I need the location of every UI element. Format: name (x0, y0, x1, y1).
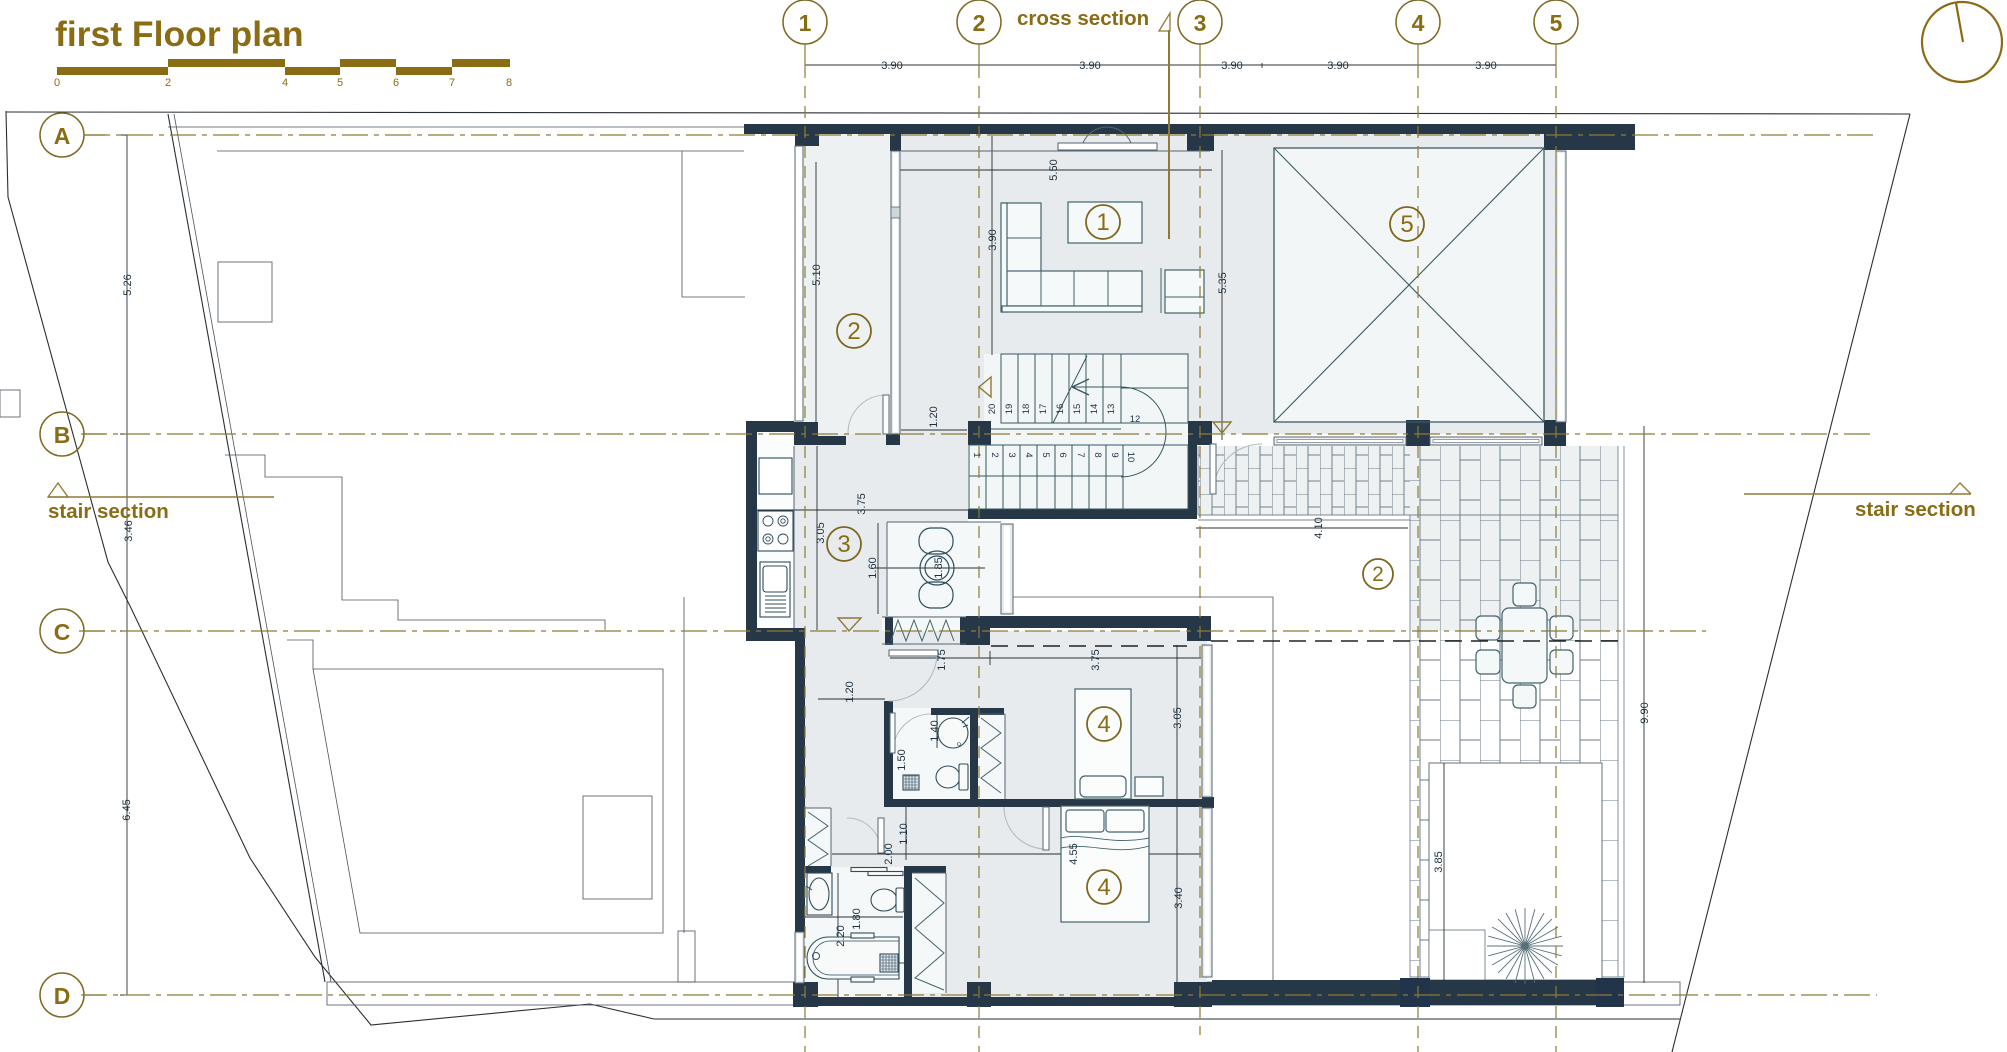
svg-text:2: 2 (989, 452, 1000, 457)
svg-text:20: 20 (987, 404, 998, 415)
svg-text:4: 4 (282, 77, 288, 89)
svg-text:13: 13 (1106, 404, 1117, 415)
svg-text:stair section: stair section (1855, 498, 1976, 521)
svg-text:C: C (54, 619, 71, 645)
svg-text:1.85: 1.85 (933, 557, 945, 578)
svg-text:6: 6 (393, 77, 399, 89)
svg-text:A: A (54, 123, 71, 149)
svg-text:3.90: 3.90 (1475, 60, 1496, 72)
svg-text:9: 9 (1109, 452, 1120, 457)
svg-text:6.45: 6.45 (121, 799, 133, 820)
svg-text:4.55: 4.55 (1068, 843, 1080, 864)
svg-text:15: 15 (1072, 404, 1083, 415)
svg-text:1.10: 1.10 (898, 823, 910, 844)
svg-text:5: 5 (1550, 10, 1563, 36)
svg-text:3: 3 (837, 531, 850, 558)
svg-text:1: 1 (799, 10, 812, 36)
svg-text:5.35: 5.35 (1217, 272, 1229, 293)
svg-text:3.05: 3.05 (1172, 707, 1184, 728)
svg-text:2: 2 (165, 77, 171, 89)
svg-text:5.26: 5.26 (122, 274, 134, 295)
svg-text:6: 6 (1057, 452, 1068, 457)
svg-text:4: 4 (1412, 10, 1425, 36)
svg-text:8: 8 (1092, 452, 1103, 457)
svg-text:3.90: 3.90 (1327, 60, 1348, 72)
svg-text:16: 16 (1055, 404, 1066, 415)
svg-text:2.00: 2.00 (883, 843, 895, 864)
svg-text:1: 1 (1096, 209, 1109, 236)
svg-text:17: 17 (1038, 404, 1049, 415)
svg-text:3.75: 3.75 (856, 493, 868, 514)
svg-text:5.10: 5.10 (811, 264, 823, 285)
svg-text:19: 19 (1004, 404, 1015, 415)
svg-text:4: 4 (1097, 711, 1110, 738)
svg-text:14: 14 (1089, 404, 1100, 415)
svg-text:3.90: 3.90 (1079, 60, 1100, 72)
svg-text:4.10: 4.10 (1313, 517, 1325, 538)
svg-text:2: 2 (1372, 563, 1384, 586)
svg-text:stair section: stair section (48, 500, 169, 523)
svg-text:5: 5 (1400, 211, 1413, 238)
svg-text:1.20: 1.20 (844, 681, 856, 702)
svg-text:1: 1 (971, 452, 982, 457)
svg-text:1.60: 1.60 (867, 557, 879, 578)
svg-text:3.90: 3.90 (987, 229, 999, 250)
svg-text:4: 4 (1023, 452, 1034, 457)
svg-text:3.90: 3.90 (881, 60, 902, 72)
svg-text:cross section: cross section (1017, 7, 1149, 30)
svg-text:1.80: 1.80 (851, 908, 863, 929)
svg-text:10: 10 (1125, 452, 1136, 463)
svg-text:3.05: 3.05 (815, 522, 827, 543)
svg-text:4: 4 (1097, 874, 1110, 901)
svg-text:12: 12 (1130, 414, 1141, 425)
svg-text:3.85: 3.85 (1433, 851, 1445, 872)
svg-text:first Floor plan: first Floor plan (55, 14, 304, 54)
svg-text:7: 7 (449, 77, 455, 89)
svg-text:2.20: 2.20 (835, 925, 847, 946)
svg-text:2: 2 (973, 10, 986, 36)
svg-text:8: 8 (506, 77, 512, 89)
svg-text:3.75: 3.75 (1090, 649, 1102, 670)
svg-text:3.90: 3.90 (1221, 60, 1242, 72)
svg-text:2: 2 (847, 318, 860, 345)
svg-text:1.50: 1.50 (896, 749, 908, 770)
svg-text:18: 18 (1021, 404, 1032, 415)
svg-text:5: 5 (1040, 452, 1051, 457)
svg-text:0: 0 (54, 77, 60, 89)
svg-text:D: D (54, 983, 71, 1009)
svg-text:3: 3 (1194, 10, 1207, 36)
svg-text:5.50: 5.50 (1048, 159, 1060, 180)
svg-text:1.40: 1.40 (929, 720, 941, 741)
svg-text:7: 7 (1075, 452, 1086, 457)
svg-text:3: 3 (1006, 452, 1017, 457)
svg-text:3.46: 3.46 (123, 520, 135, 541)
svg-text:1.20: 1.20 (928, 406, 940, 427)
svg-text:9.90: 9.90 (1639, 702, 1651, 723)
svg-text:3.40: 3.40 (1173, 887, 1185, 908)
svg-text:B: B (54, 422, 71, 448)
svg-text:5: 5 (337, 77, 343, 89)
svg-text:1.75: 1.75 (936, 649, 948, 670)
